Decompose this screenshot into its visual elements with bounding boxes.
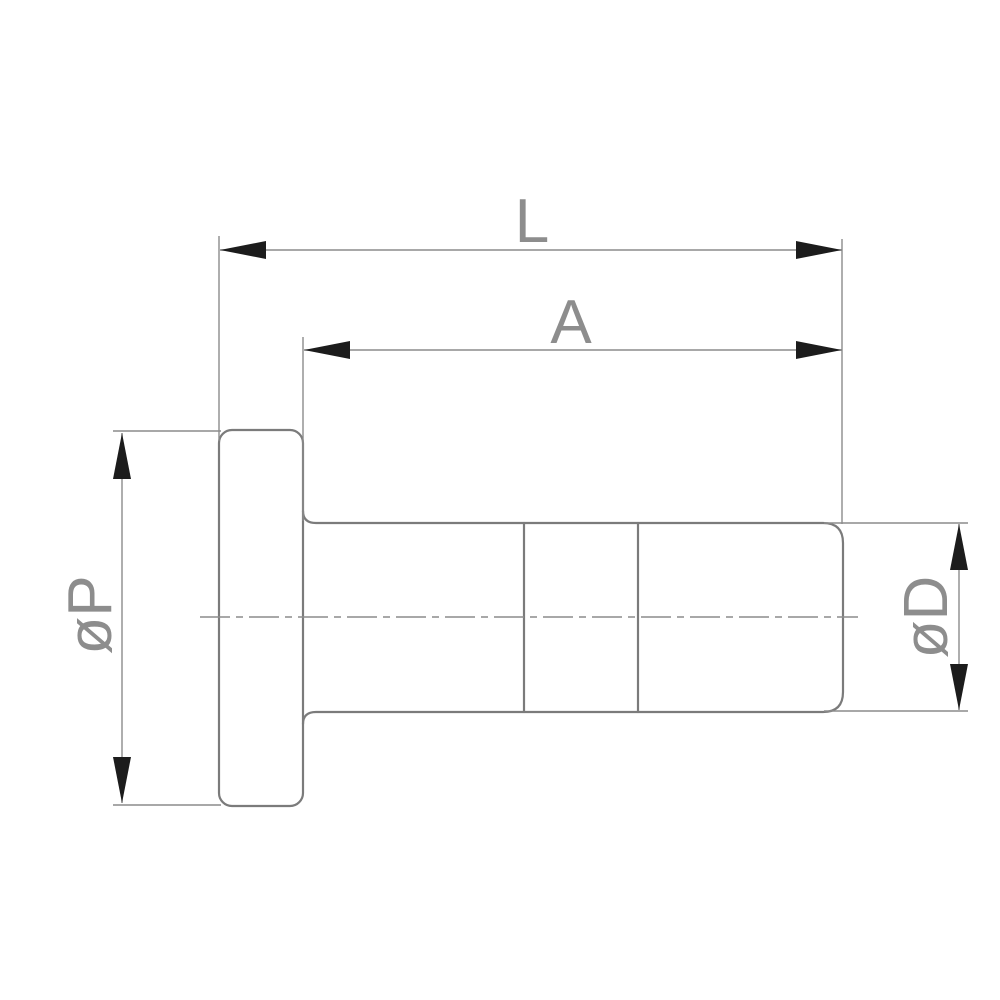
dim-A-arrowhead-right xyxy=(796,341,842,359)
part-outline-group xyxy=(219,430,843,806)
dim-D-label: øD xyxy=(892,576,961,659)
dim-A-arrowhead-left xyxy=(304,341,350,359)
dim-L-arrowhead-right xyxy=(796,241,842,259)
technical-drawing-canvas: L A øP øD xyxy=(0,0,1000,1000)
dim-P-arrowhead-bottom xyxy=(113,757,131,803)
dim-L-label: L xyxy=(515,187,549,256)
flange-outline xyxy=(219,430,303,806)
dim-P-label: øP xyxy=(56,575,125,654)
dim-L-arrowhead-left xyxy=(220,241,266,259)
dimension-flange-diameter: øP xyxy=(56,431,221,805)
dimension-body-length: A xyxy=(303,288,842,521)
dim-P-arrowhead-top xyxy=(113,433,131,479)
dimension-overall-length: L xyxy=(219,187,842,524)
dim-A-label: A xyxy=(550,288,592,357)
dim-D-arrowhead-top xyxy=(950,524,968,570)
technical-drawing-page: L A øP øD xyxy=(0,0,1000,1000)
dim-D-arrowhead-bottom xyxy=(950,664,968,710)
